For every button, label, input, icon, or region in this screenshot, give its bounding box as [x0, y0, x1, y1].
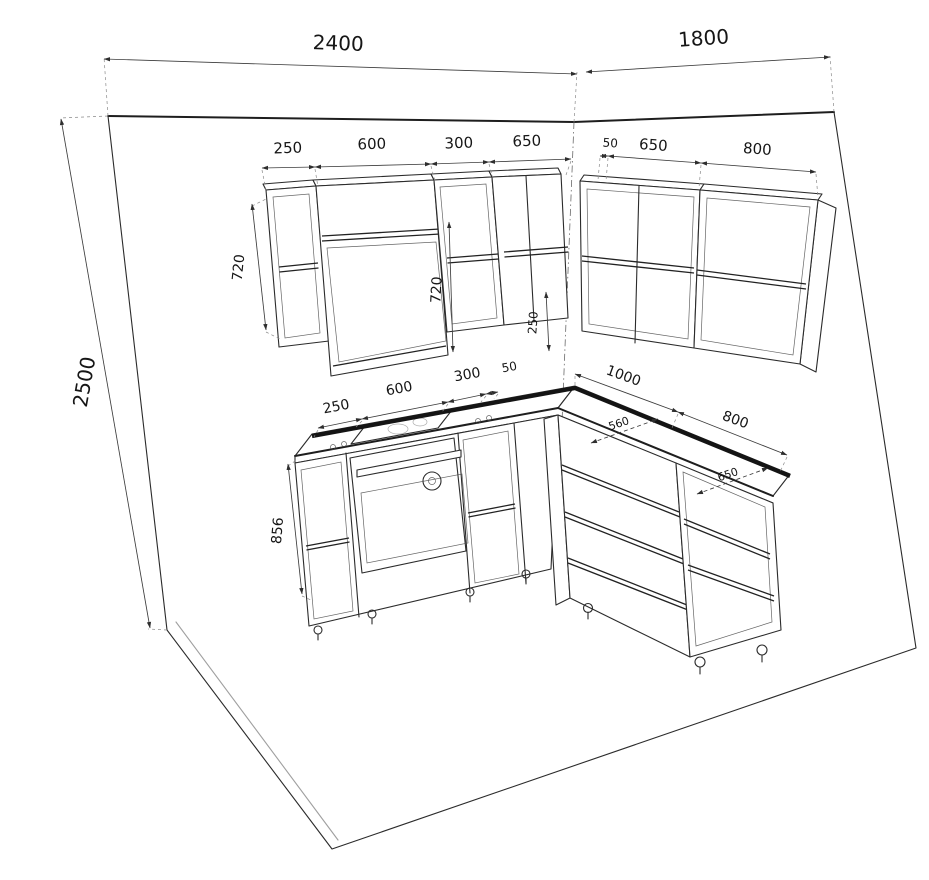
kitchen-isometric-drawing: 2400 1800 2500 250 600 300 650 50 650 80…	[0, 0, 929, 880]
dim-upper-300: 300	[444, 134, 473, 153]
dim-upper-600: 600	[357, 135, 386, 154]
dim-base-250: 250	[322, 397, 351, 418]
dim-right-wall-width: 1800	[677, 24, 729, 51]
dim-left-wall-width: 2400	[312, 30, 364, 56]
dim-upper-250: 250	[273, 139, 302, 158]
dim-base-1000: 1000	[604, 363, 643, 390]
dim-base-300: 300	[453, 365, 482, 385]
dim-base-height: 856	[269, 517, 287, 545]
dim-wall-height: 2500	[68, 355, 100, 409]
dim-upper-height-hood: 720	[428, 276, 445, 304]
dim-upper-50: 50	[602, 135, 618, 150]
dim-corner-gap: 250	[525, 311, 541, 335]
dim-upper-650-left: 650	[512, 132, 541, 151]
upper-cabinets-right-wall	[580, 175, 836, 372]
oven	[350, 438, 468, 573]
dim-base-600: 600	[385, 379, 414, 400]
dim-upper-650-right: 650	[638, 135, 668, 155]
upper-cabinets-left-wall	[263, 168, 569, 376]
dim-upper-height-left: 720	[230, 253, 249, 281]
dim-upper-800: 800	[742, 139, 772, 159]
dim-base-800: 800	[720, 408, 751, 432]
dim-base-50: 50	[501, 359, 518, 375]
kitchen-drawing-canvas: 2400 1800 2500 250 600 300 650 50 650 80…	[0, 0, 929, 880]
